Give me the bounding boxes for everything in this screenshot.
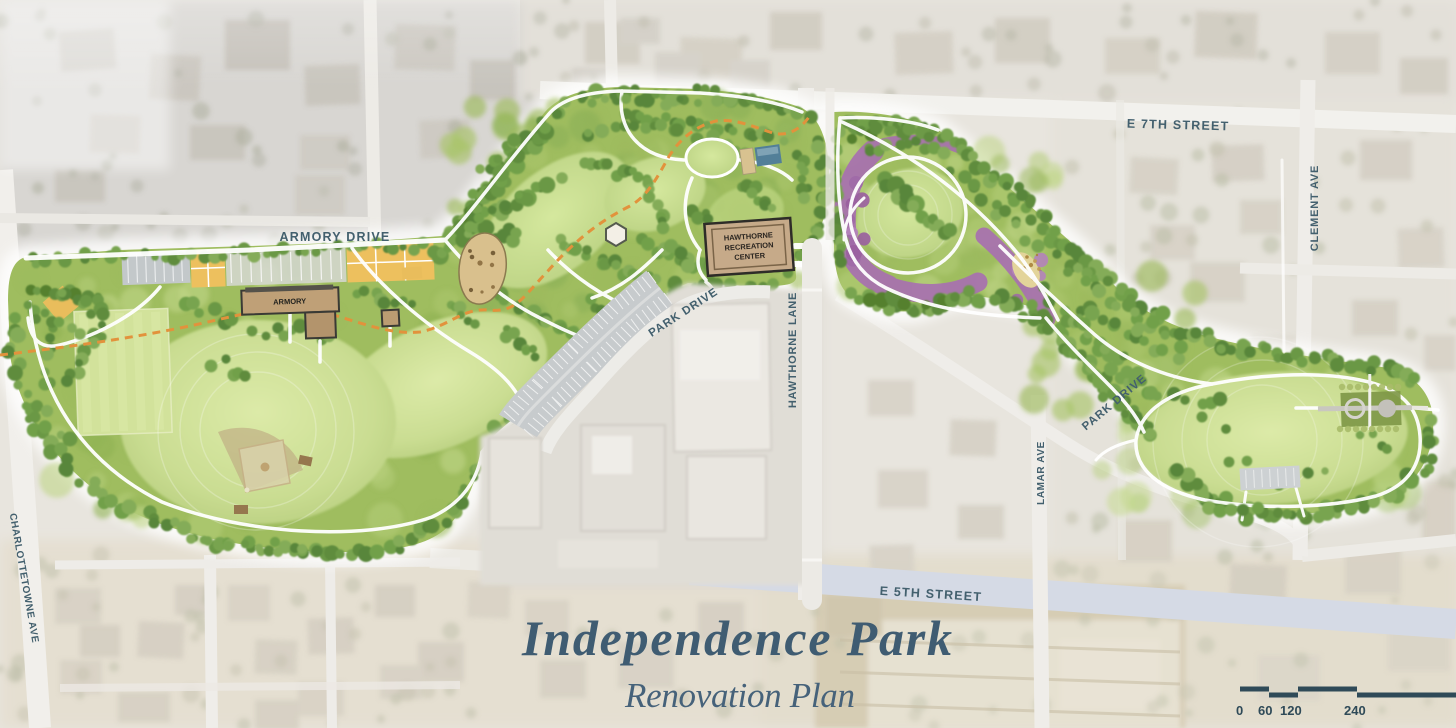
svg-text:60: 60 [1258, 703, 1272, 718]
svg-text:ARMORY: ARMORY [273, 296, 306, 306]
svg-text:LAMAR AVE: LAMAR AVE [1036, 441, 1047, 505]
svg-text:240: 240 [1344, 703, 1366, 718]
svg-text:Renovation Plan: Renovation Plan [624, 676, 855, 715]
svg-text:ARMORY DRIVE: ARMORY DRIVE [280, 230, 391, 244]
svg-text:120: 120 [1280, 703, 1302, 718]
svg-text:E 7TH STREET: E 7TH STREET [1127, 117, 1230, 134]
svg-text:HAWTHORNE LANE: HAWTHORNE LANE [787, 292, 799, 408]
svg-text:CLEMENT AVE: CLEMENT AVE [1309, 165, 1321, 251]
svg-text:0: 0 [1236, 703, 1243, 718]
svg-text:Independence Park: Independence Park [521, 610, 952, 666]
